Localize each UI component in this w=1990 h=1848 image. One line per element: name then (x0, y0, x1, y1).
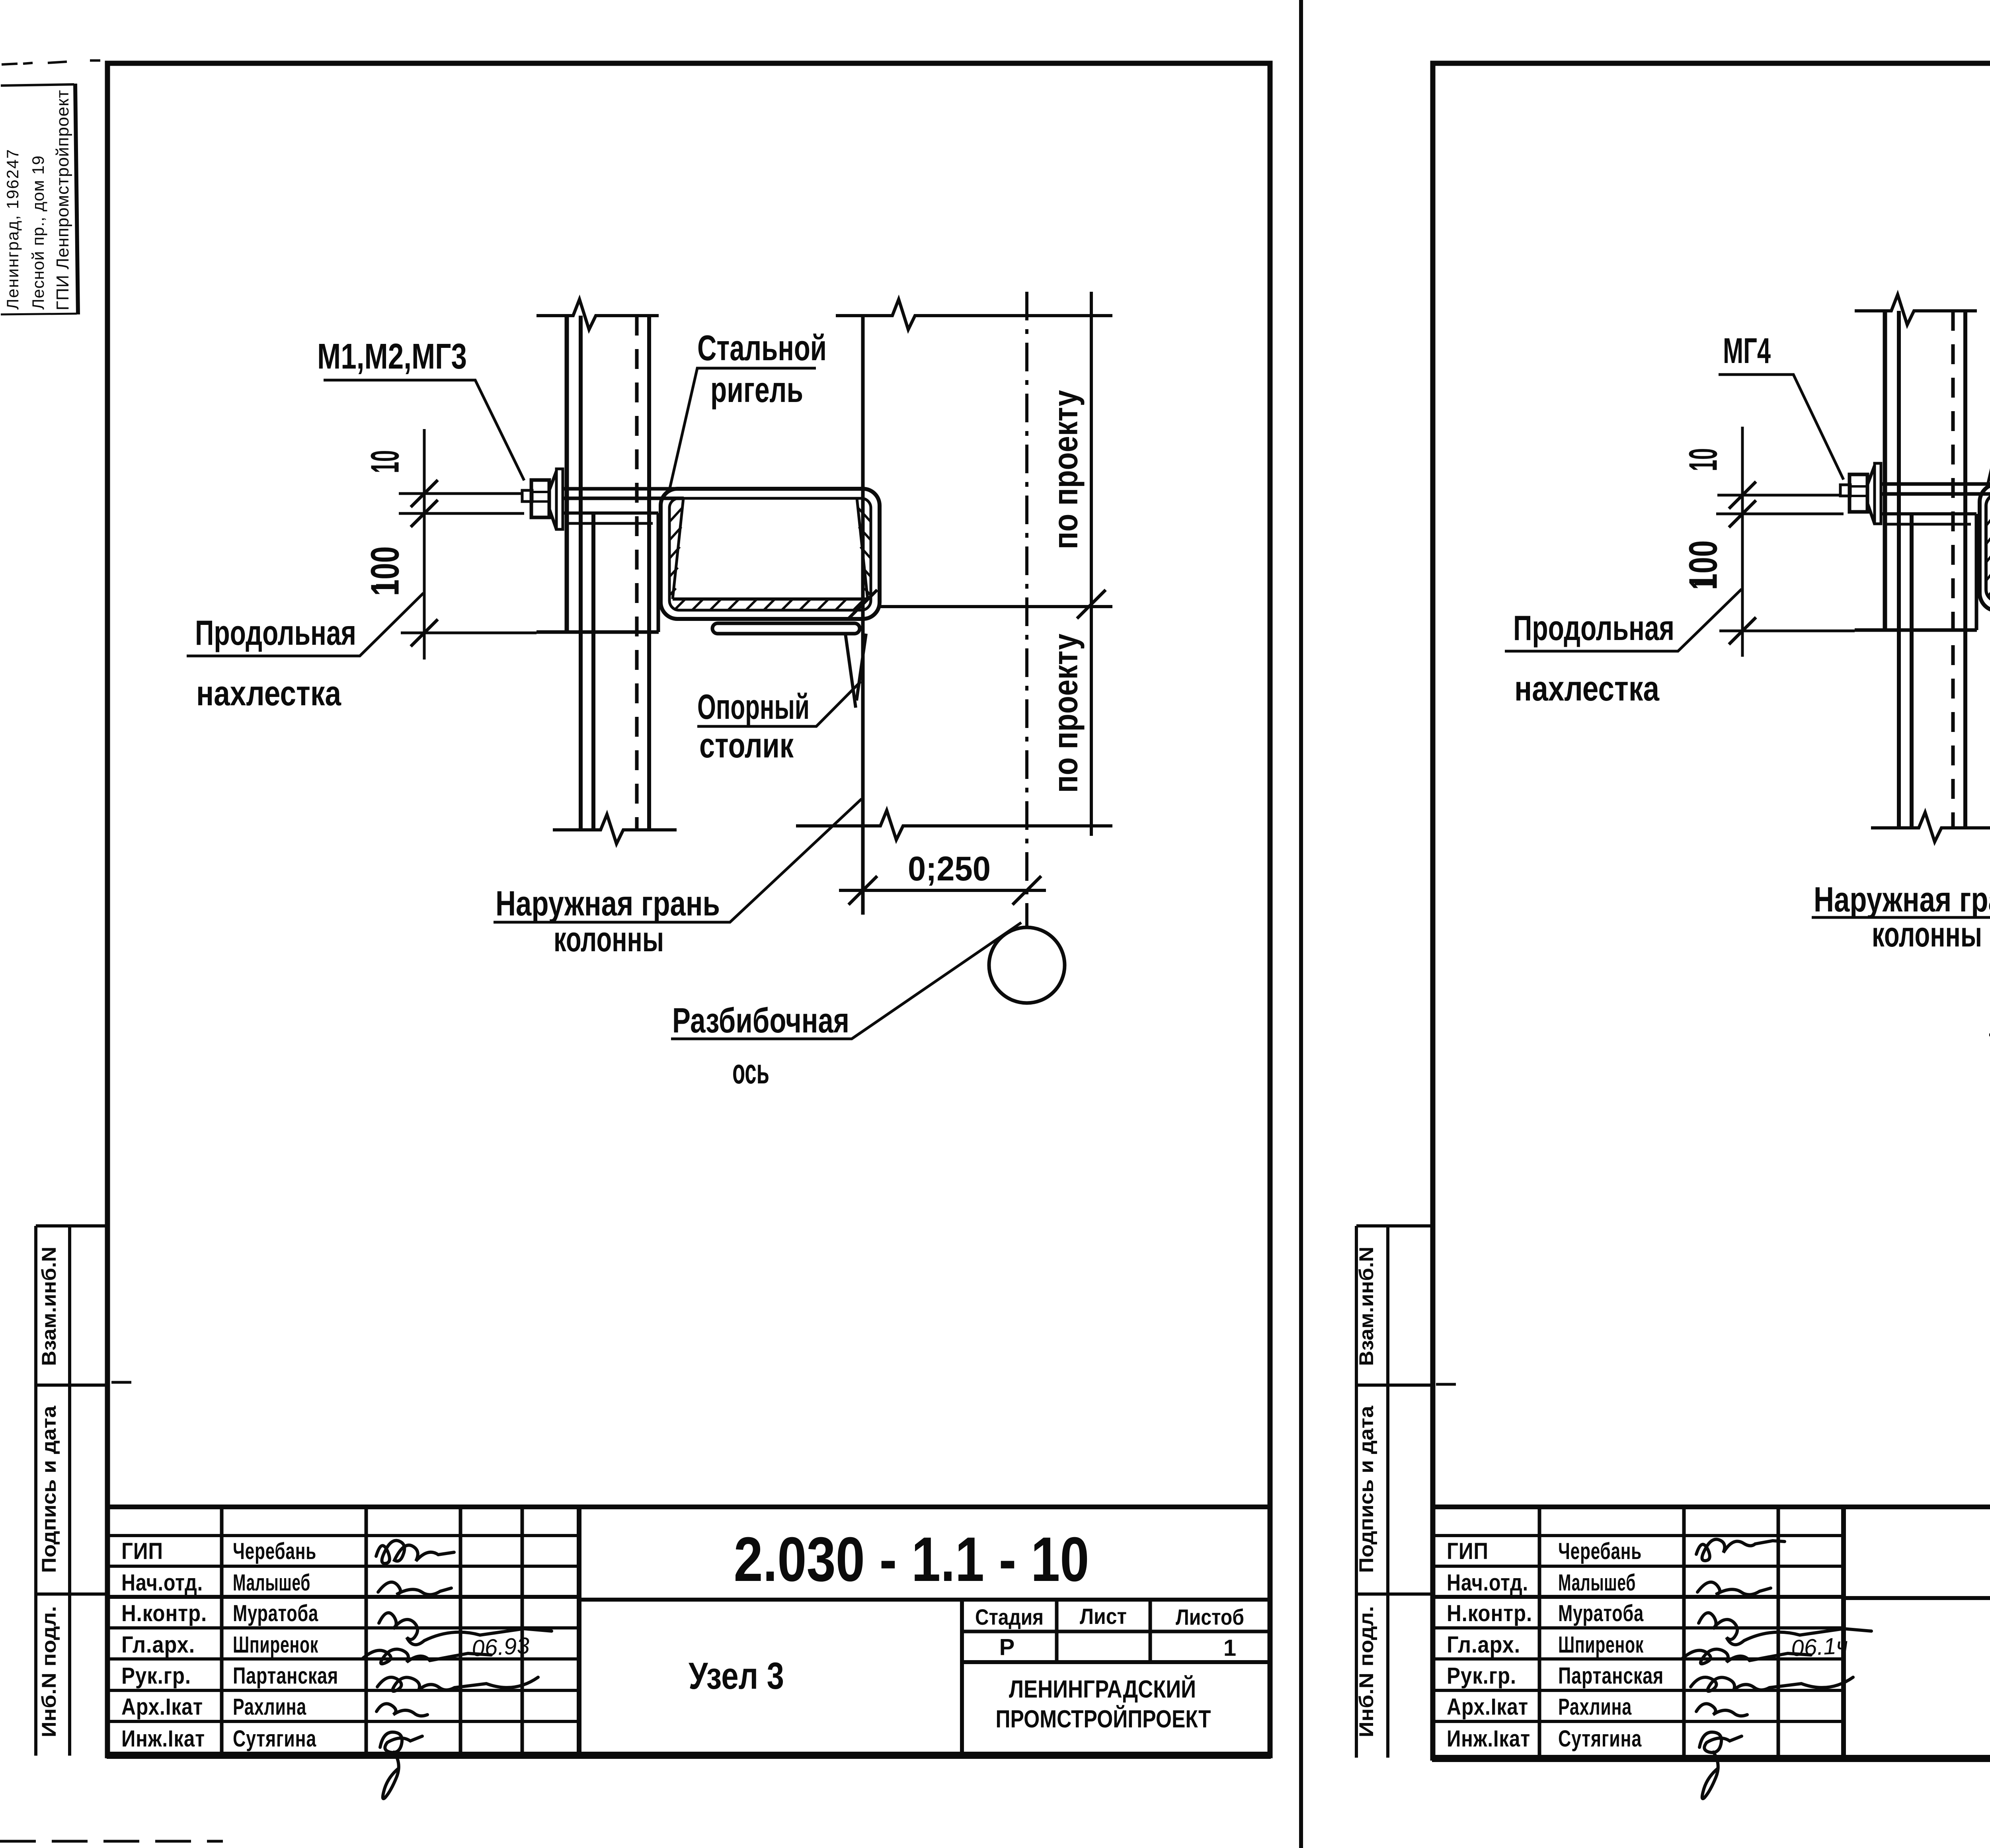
svg-text:Взам.инб.N: Взам.инб.N (1355, 1247, 1377, 1366)
svg-text:ригель: ригель (710, 370, 803, 410)
svg-text:100: 100 (1681, 541, 1725, 590)
svg-text:нахлестка: нахлестка (196, 673, 341, 713)
svg-text:Инж.Iкат: Инж.Iкат (1447, 1726, 1530, 1752)
svg-text:Арх.Iкат: Арх.Iкат (1447, 1694, 1528, 1720)
svg-text:Продольная: Продольная (195, 613, 356, 652)
svg-text:ось: ось (732, 1052, 769, 1091)
svg-text:Опорный: Опорный (697, 687, 810, 726)
svg-text:М1,М2,МГ3: М1,М2,МГ3 (317, 337, 467, 377)
svg-text:100: 100 (363, 546, 407, 596)
svg-text:06.93: 06.93 (471, 1633, 530, 1662)
svg-text:Инб.N подл.: Инб.N подл. (38, 1606, 60, 1737)
svg-text:10: 10 (363, 450, 407, 473)
svg-text:Наружная грань: Наружная грань (496, 884, 720, 923)
svg-text:ПРОМСТРОЙПРОЕКТ: ПРОМСТРОЙПРОЕКТ (996, 1705, 1211, 1733)
svg-text:Муратоба: Муратоба (1558, 1600, 1644, 1626)
svg-text:Партанская: Партанская (233, 1663, 338, 1689)
svg-text:Наружная грань: Наружная грань (1814, 880, 1990, 919)
svg-text:ГИП: ГИП (121, 1538, 163, 1564)
svg-text:Черебань: Черебань (1558, 1538, 1642, 1564)
svg-text:Малышеб: Малышеб (233, 1570, 310, 1596)
svg-text:Р: Р (999, 1634, 1015, 1660)
svg-text:Узел 3: Узел 3 (689, 1655, 784, 1697)
svg-text:Рук.гр.: Рук.гр. (1447, 1663, 1516, 1689)
svg-text:Инб.N подл.: Инб.N подл. (1355, 1606, 1377, 1737)
svg-text:06.1ч: 06.1ч (1791, 1633, 1849, 1661)
svg-text:по проекту: по проекту (1047, 390, 1085, 549)
svg-text:Гл.арх.: Гл.арх. (121, 1632, 195, 1658)
svg-text:по проекту: по проекту (1047, 634, 1085, 793)
svg-text:1: 1 (1223, 1635, 1236, 1661)
svg-text:Лесной пр., дом 19: Лесной пр., дом 19 (29, 155, 47, 310)
svg-text:МГ4: МГ4 (1723, 331, 1771, 371)
svg-text:Арх.Iкат: Арх.Iкат (121, 1694, 203, 1720)
svg-text:Разбибочная: Разбибочная (672, 1001, 849, 1040)
svg-text:10: 10 (1681, 448, 1725, 471)
svg-text:нахлестка: нахлестка (1514, 669, 1660, 708)
svg-text:Продольная: Продольная (1513, 608, 1674, 648)
svg-text:Сутягина: Сутягина (1558, 1726, 1642, 1752)
svg-text:Нач.отд.: Нач.отд. (121, 1570, 203, 1596)
svg-text:Рахлина: Рахлина (1558, 1694, 1632, 1720)
svg-text:Ленинград, 196247: Ленинград, 196247 (3, 148, 22, 310)
svg-text:Гл.арх.: Гл.арх. (1447, 1632, 1520, 1658)
svg-text:Сутягина: Сутягина (233, 1726, 316, 1752)
svg-text:Подпись и дата: Подпись и дата (38, 1405, 60, 1573)
svg-text:Подпись и дата: Подпись и дата (1355, 1405, 1377, 1573)
svg-text:Шпиренок: Шпиренок (233, 1632, 318, 1658)
svg-text:Листоб: Листоб (1176, 1604, 1244, 1629)
svg-text:Стальной: Стальной (697, 328, 827, 368)
svg-text:Стадия: Стадия (975, 1604, 1044, 1629)
svg-text:Инж.Iкат: Инж.Iкат (121, 1726, 205, 1752)
svg-text:Малышеб: Малышеб (1558, 1570, 1636, 1596)
svg-text:Рахлина: Рахлина (233, 1694, 306, 1720)
svg-text:ГПИ Ленпромстройпроект: ГПИ Ленпромстройпроект (53, 90, 72, 310)
svg-text:колонны: колонны (1872, 915, 1982, 954)
svg-text:Партанская: Партанская (1558, 1663, 1664, 1689)
svg-text:ГИП: ГИП (1447, 1538, 1489, 1564)
svg-text:Н.контр.: Н.контр. (1447, 1600, 1532, 1626)
svg-text:ЛЕНИНГРАДСКИЙ: ЛЕНИНГРАДСКИЙ (1009, 1675, 1196, 1703)
svg-text:Нач.отд.: Нач.отд. (1447, 1570, 1528, 1596)
svg-text:Взам.инб.N: Взам.инб.N (38, 1247, 60, 1366)
svg-text:0;250: 0;250 (908, 850, 991, 888)
svg-text:Рук.гр.: Рук.гр. (121, 1663, 191, 1689)
svg-text:Шпиренок: Шпиренок (1558, 1632, 1644, 1658)
svg-text:столик: столик (699, 726, 794, 765)
svg-text:Муратоба: Муратоба (233, 1600, 318, 1626)
svg-text:2.030 - 1.1 - 10: 2.030 - 1.1 - 10 (734, 1524, 1089, 1594)
svg-text:Черебань: Черебань (233, 1538, 316, 1564)
svg-text:Н.контр.: Н.контр. (121, 1600, 207, 1626)
svg-text:колонны: колонны (554, 919, 664, 959)
svg-text:Лист: Лист (1080, 1604, 1127, 1629)
